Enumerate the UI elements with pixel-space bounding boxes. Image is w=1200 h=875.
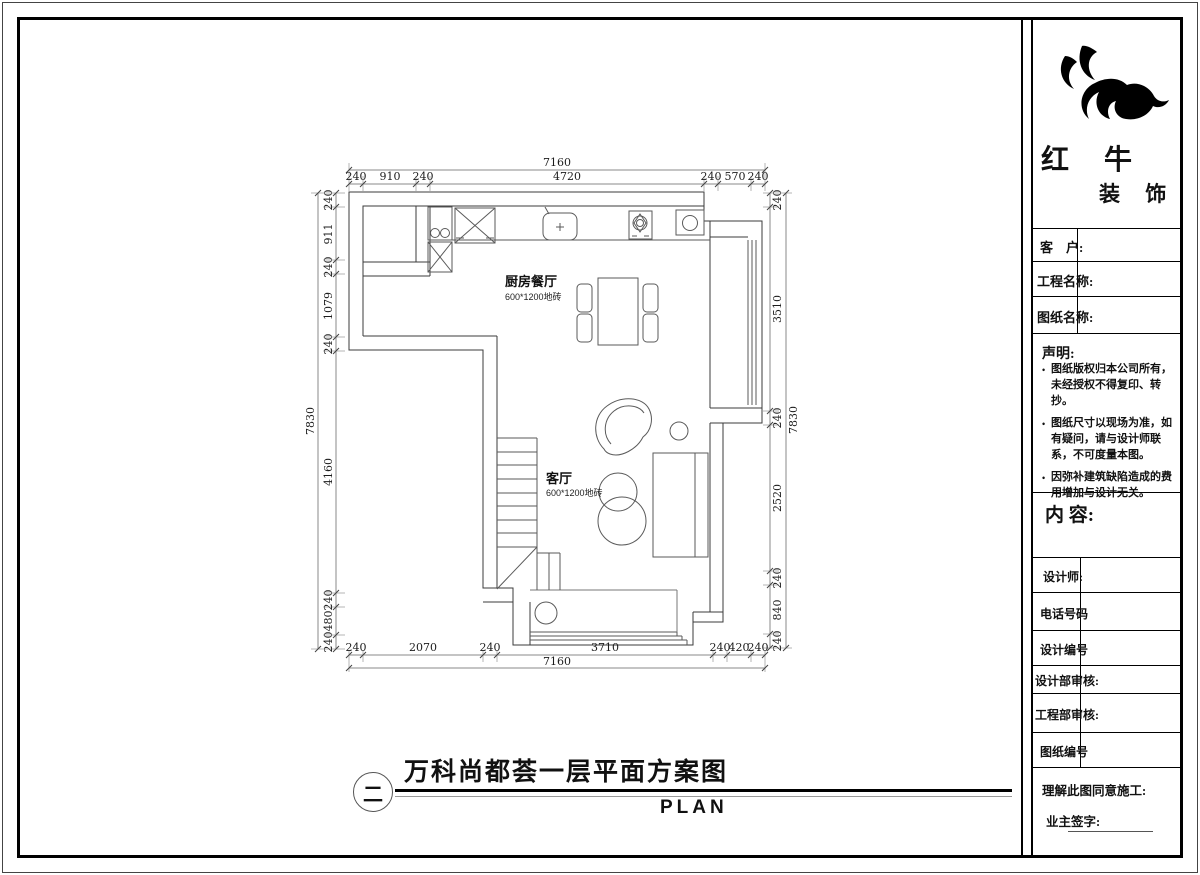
drawing-title: 万科尚都荟一层平面方案图 [404, 752, 728, 788]
corner-appliance [676, 210, 704, 235]
dim-label: 240 [710, 641, 731, 654]
dim-label: 911 [322, 224, 335, 245]
cabinet [428, 207, 452, 240]
dim-label: 240 [748, 641, 769, 654]
dim-label: 240 [322, 257, 335, 278]
agree-label: 理解此图同意施工: [1042, 780, 1146, 799]
balcony-threshold [530, 590, 677, 632]
dining-chair [577, 314, 592, 342]
coffee-table [598, 497, 646, 545]
dim-label: 240 [771, 408, 784, 429]
wall-recess [363, 206, 416, 262]
field-client: 客 户: [1040, 237, 1083, 256]
title-underline-thick [395, 789, 1012, 792]
window-right-glazing [748, 240, 756, 405]
room-floor-kitchen: 600*1200地砖 [505, 291, 562, 302]
dim-label: 240 [346, 170, 367, 183]
tb-separator [1033, 665, 1180, 666]
room-name-living: 客厅 [546, 471, 572, 486]
statement-title: 声明: [1042, 343, 1075, 363]
dim-label: 240 [346, 641, 367, 654]
dim-total: 7830 [787, 406, 800, 434]
tb-separator [1033, 557, 1180, 558]
double-basin [441, 229, 450, 238]
dim-label: 2070 [409, 641, 437, 654]
dim-label: 420 [729, 641, 750, 654]
dimension-labels: 240 910 240 4720 240 570 240 7160 240 20… [304, 156, 800, 668]
tb-separator [1033, 592, 1180, 593]
row-eng-review: 工程部审核: [1035, 706, 1099, 723]
dim-label: 240 [322, 334, 335, 355]
drawing-frame-divider [1021, 20, 1023, 855]
dim-label: 240 [480, 641, 501, 654]
tb-separator [1033, 261, 1180, 262]
row-design-no: 设计编号 [1040, 641, 1088, 658]
dim-label: 4720 [553, 170, 581, 183]
kitchen-fixtures [428, 207, 710, 272]
statement-item: 图纸版权归本公司所有，未经授权不得复印、转抄。 [1041, 362, 1175, 410]
room-name-kitchen: 厨房餐厅 [505, 274, 557, 289]
tb-column-divider [1080, 557, 1081, 767]
double-basin [431, 229, 440, 238]
dim-label: 3510 [771, 295, 784, 323]
tb-separator [1033, 296, 1180, 297]
brand-name-2: 装 饰 [1099, 178, 1176, 208]
stair-break-line [497, 547, 537, 589]
brand-name: 红 牛 [1041, 138, 1146, 178]
dim-label: 3710 [591, 641, 619, 654]
staircase [497, 438, 560, 590]
walls [349, 192, 762, 645]
sink-cross [545, 207, 564, 231]
dim-label: 240 [322, 590, 335, 611]
dim-label: 240 [748, 170, 769, 183]
dim-total: 7160 [543, 655, 571, 668]
dining-table [598, 278, 638, 345]
row-designer: 设计师: [1043, 568, 1083, 585]
content-label: 内 容: [1045, 500, 1094, 527]
tb-separator [1033, 767, 1180, 768]
coffee-table [599, 473, 637, 511]
dim-label: 840 [771, 600, 784, 621]
drawing-index: 二 [363, 778, 383, 807]
sign-label: 业主签字: [1046, 811, 1100, 830]
field-project: 工程名称: [1037, 271, 1093, 290]
redbull-logo-icon [1040, 40, 1175, 140]
dim-label: 2520 [771, 484, 784, 512]
dimension-ticks [315, 167, 789, 671]
dim-label: 240 [413, 170, 434, 183]
signature-line [1068, 831, 1153, 832]
dimension-lines [311, 163, 792, 672]
dim-label: 240 [322, 632, 335, 653]
tb-separator [1033, 333, 1180, 334]
sofa [653, 453, 708, 557]
drawing-subtitle: PLAN [660, 797, 728, 819]
tb-separator [1033, 228, 1180, 229]
dim-label: 1079 [322, 292, 335, 320]
sheet: 240 910 240 4720 240 570 240 7160 240 20… [0, 0, 1200, 875]
dim-label: 570 [725, 170, 746, 183]
dining-chair [643, 314, 658, 342]
understair-closet [537, 547, 560, 590]
dim-total: 7160 [543, 156, 571, 169]
room-labels: 厨房餐厅 600*1200地砖 客厅 600*1200地砖 [505, 274, 603, 498]
tb-separator [1033, 732, 1180, 733]
dining-chair [643, 284, 658, 312]
statement-list: 图纸版权归本公司所有，未经授权不得复印、转抄。 图纸尺寸以现场为准，如有疑问，请… [1041, 362, 1175, 508]
floor-plan-svg: 240 910 240 4720 240 570 240 7160 240 20… [20, 20, 1020, 850]
dim-label: 240 [322, 190, 335, 211]
titleblock-left-border [1031, 20, 1033, 855]
dining-chair [577, 284, 592, 312]
dim-label: 240 [771, 190, 784, 211]
side-table [670, 422, 688, 440]
row-design-review: 设计部审核: [1035, 672, 1099, 689]
dim-total: 7830 [304, 407, 317, 435]
dim-label: 4160 [322, 458, 335, 486]
dim-label: 240 [701, 170, 722, 183]
field-drawing: 图纸名称: [1037, 307, 1093, 326]
room-floor-living: 600*1200地砖 [546, 487, 603, 498]
row-drawing-no: 图纸编号 [1040, 743, 1088, 760]
dim-label: 240 [771, 631, 784, 652]
furniture [535, 278, 708, 624]
inner-wall-lines [363, 206, 762, 645]
dim-label: 480 [322, 611, 335, 632]
row-phone: 电话号码 [1040, 605, 1088, 622]
drawing-index-bubble: 二 [353, 772, 393, 812]
tb-separator [1033, 693, 1180, 694]
dim-label: 910 [380, 170, 401, 183]
outer-wall-outline [349, 192, 762, 645]
armchair [596, 399, 652, 455]
extension-lines [311, 163, 792, 672]
dim-label: 240 [771, 568, 784, 589]
statement-item: 因弥补建筑缺陷造成的费用增加与设计无关。 [1041, 470, 1175, 502]
balcony-table [535, 602, 557, 624]
tb-separator [1033, 630, 1180, 631]
statement-item: 图纸尺寸以现场为准，如有疑问，请与设计师联系，不可度量本图。 [1041, 416, 1175, 464]
